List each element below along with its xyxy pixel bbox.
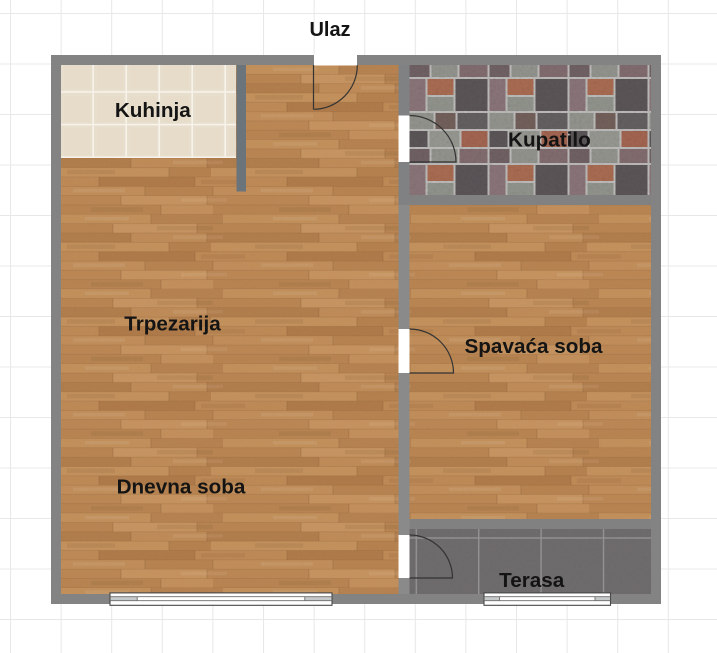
svg-text:Trpezarija: Trpezarija (124, 312, 221, 335)
svg-text:Spavaća soba: Spavaća soba (465, 335, 603, 358)
svg-text:Kupatilo: Kupatilo (508, 128, 591, 151)
svg-text:Terasa: Terasa (499, 569, 565, 592)
svg-text:Kuhinja: Kuhinja (115, 99, 191, 122)
svg-text:Dnevna soba: Dnevna soba (117, 476, 246, 499)
svg-text:Ulaz: Ulaz (309, 19, 350, 41)
